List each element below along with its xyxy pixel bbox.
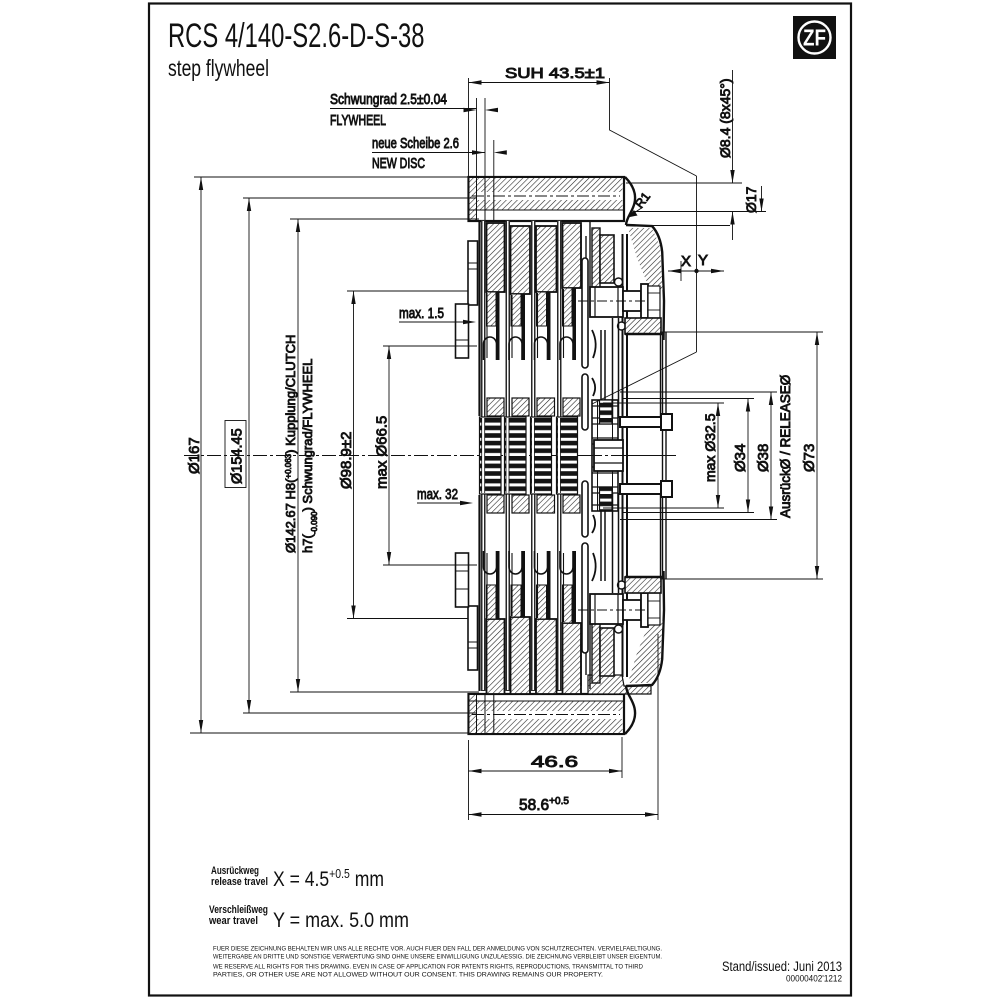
svg-text:WEITERGABE AN DRITTE UND SONST: WEITERGABE AN DRITTE UND SONSTIGE VERWER… [213, 954, 662, 961]
svg-text:max. 1.5: max. 1.5 [399, 305, 444, 322]
svg-text:Ø17: Ø17 [743, 186, 759, 213]
svg-text:NEW DISC: NEW DISC [372, 156, 425, 172]
svg-text:Ø34: Ø34 [732, 444, 749, 472]
svg-text:neue Scheibe 2.6: neue Scheibe 2.6 [372, 136, 459, 152]
svg-text:Ø38: Ø38 [755, 444, 772, 472]
svg-text:wear travel: wear travel [208, 915, 258, 927]
svg-text:RCS 4/140-S2.6-D-S-38: RCS 4/140-S2.6-D-S-38 [168, 17, 424, 55]
svg-text:PARTIES, OR OTHER USE ARE NOT: PARTIES, OR OTHER USE ARE NOT ALLOWED WI… [213, 972, 603, 979]
svg-text:X: X [681, 253, 691, 270]
svg-text:max Ø32.5: max Ø32.5 [702, 413, 718, 482]
svg-text:Ø154.45: Ø154.45 [230, 428, 246, 484]
svg-text:Stand/issued: Juni 2013: Stand/issued: Juni 2013 [722, 959, 842, 974]
svg-text:Ø73: Ø73 [801, 444, 818, 472]
svg-text:WE RESERVE ALL RIGHTS FOR THIS: WE RESERVE ALL RIGHTS FOR THIS DRAWING. … [213, 964, 643, 971]
svg-text:46.6: 46.6 [531, 754, 578, 771]
svg-text:release travel: release travel [211, 876, 268, 888]
svg-text:ZF: ZF [803, 25, 826, 51]
svg-text:Ø167: Ø167 [186, 437, 203, 474]
svg-text:SUH 43.5±1: SUH 43.5±1 [505, 66, 605, 82]
svg-text:Schwungrad 2.5±0.04: Schwungrad 2.5±0.04 [330, 92, 447, 108]
svg-text:AusrückØ / RELEASEØ: AusrückØ / RELEASEØ [778, 374, 793, 518]
svg-text:FUER DIESE ZEICHNUNG BEHALTEN: FUER DIESE ZEICHNUNG BEHALTEN WIR UNS AL… [213, 946, 662, 953]
svg-text:Ø142.67 H8(+0.063) Kupplung/CL: Ø142.67 H8(+0.063) Kupplung/CLUTCH [283, 335, 298, 553]
svg-text:Y: Y [698, 252, 708, 269]
svg-text:FLYWHEEL: FLYWHEEL [330, 113, 386, 129]
svg-text:X = 4.5+0.5 mm: X = 4.5+0.5 mm [273, 867, 384, 891]
svg-text:step flywheel: step flywheel [168, 57, 269, 82]
svg-text:Y = max. 5.0 mm: Y = max. 5.0 mm [273, 909, 409, 932]
svg-text:00000402'1212: 00000402'1212 [786, 974, 842, 985]
svg-text:Ø8.4 (8x45°): Ø8.4 (8x45°) [717, 78, 733, 158]
svg-text:Ø98.9±2: Ø98.9±2 [338, 432, 355, 489]
svg-text:max. 32: max. 32 [417, 486, 458, 503]
svg-text:max Ø66.5: max Ø66.5 [374, 416, 391, 489]
